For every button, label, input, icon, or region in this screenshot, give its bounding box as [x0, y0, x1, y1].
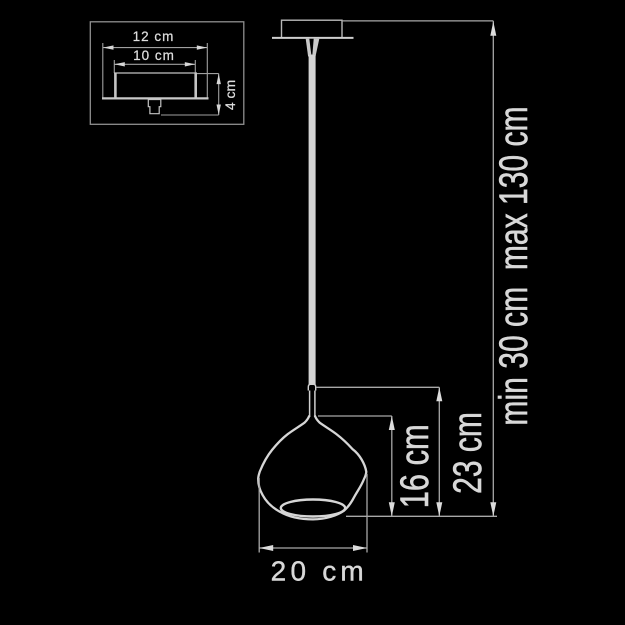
- svg-text:4 cm: 4 cm: [222, 80, 238, 110]
- svg-text:16 cm: 16 cm: [392, 424, 437, 508]
- svg-text:min 30 cm max 130 cm: min 30 cm max 130 cm: [492, 106, 536, 425]
- svg-text:10 cm: 10 cm: [133, 48, 175, 63]
- svg-text:12 cm: 12 cm: [133, 29, 175, 44]
- svg-text:23 cm: 23 cm: [446, 412, 490, 494]
- svg-text:20 cm: 20 cm: [271, 556, 368, 587]
